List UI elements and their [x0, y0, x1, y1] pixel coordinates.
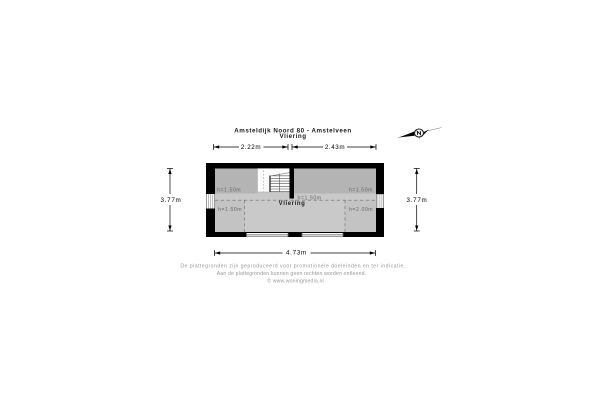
svg-text:Aan de plattegronden kunnen ge: Aan de plattegronden kunnen geen rechten…	[217, 271, 367, 277]
svg-text:3.77m: 3.77m	[406, 197, 427, 204]
svg-text:h=1.50m: h=1.50m	[218, 207, 242, 213]
svg-text:h=1.50m: h=1.50m	[217, 188, 241, 194]
svg-text:De plattegronden zijn geproduc: De plattegronden zijn geproduceerd voor …	[180, 264, 405, 270]
svg-text:h=2.00m: h=2.00m	[349, 207, 373, 213]
svg-text:© www.woningmedia.nl: © www.woningmedia.nl	[267, 277, 324, 284]
svg-text:4.73m: 4.73m	[286, 250, 307, 257]
svg-text:3.77m: 3.77m	[160, 197, 181, 204]
svg-text:Vliering: Vliering	[279, 133, 306, 140]
svg-text:Vliering: Vliering	[279, 201, 306, 207]
svg-text:2.43m: 2.43m	[325, 144, 345, 151]
svg-text:h=1.50m: h=1.50m	[349, 188, 373, 194]
svg-text:2.22m: 2.22m	[241, 144, 261, 151]
